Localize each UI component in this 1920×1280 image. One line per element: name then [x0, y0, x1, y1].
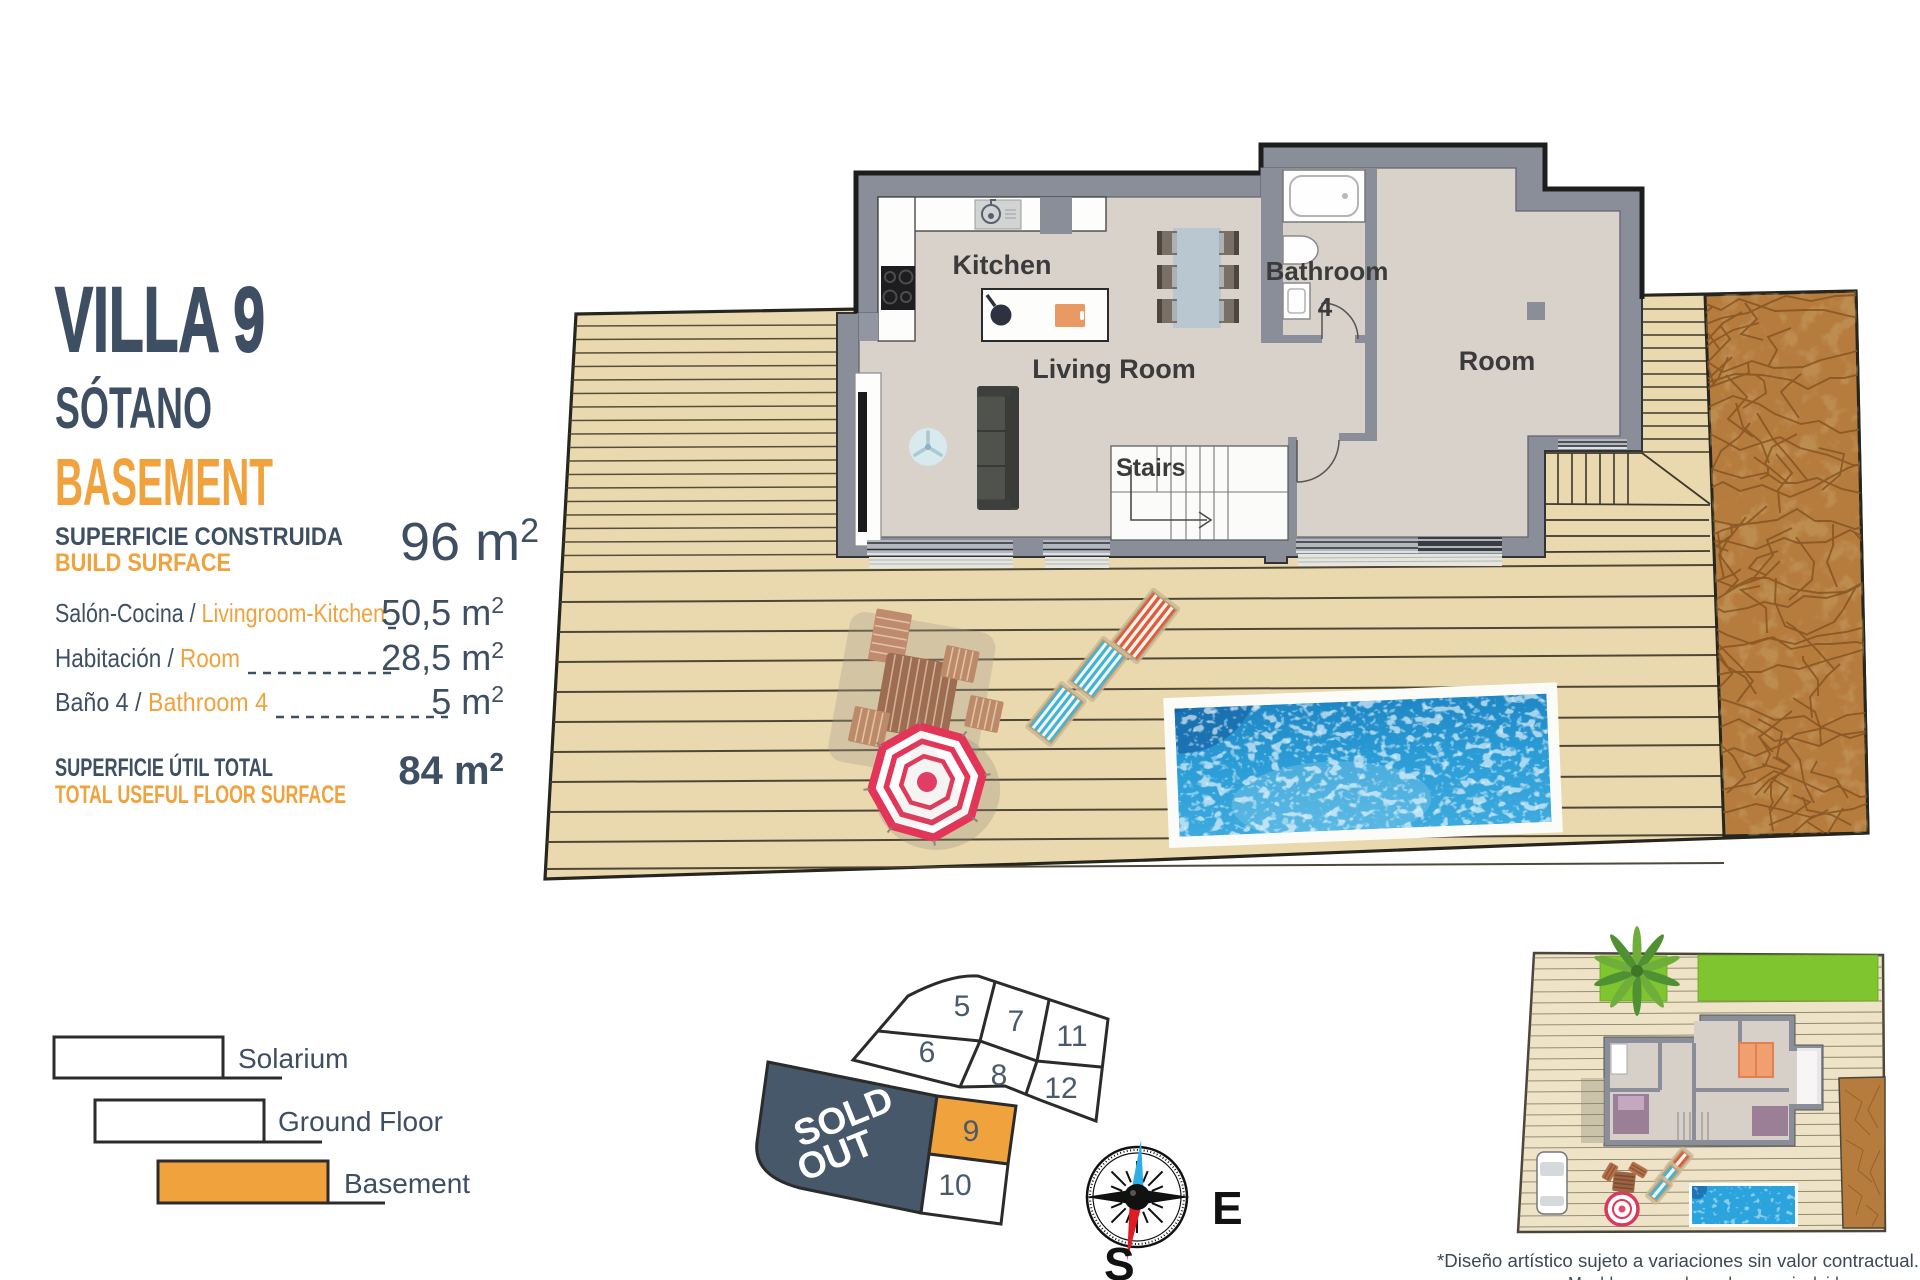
svg-text:Salón-Cocina / Livingroom-Kitc: Salón-Cocina / Livingroom-Kitchen — [55, 598, 385, 628]
svg-text:50,5 m2: 50,5 m2 — [381, 592, 504, 633]
svg-text:8: 8 — [991, 1059, 1008, 1092]
svg-text:BUILD SURFACE: BUILD SURFACE — [55, 549, 231, 577]
svg-text:6: 6 — [919, 1036, 936, 1069]
svg-text:10: 10 — [938, 1169, 971, 1202]
svg-text:Habitación / Room: Habitación / Room — [55, 643, 240, 673]
svg-text:SUPERFICIE ÚTIL TOTAL: SUPERFICIE ÚTIL TOTAL — [55, 752, 273, 782]
svg-text:SÓTANO: SÓTANO — [55, 376, 212, 441]
svg-text:5: 5 — [954, 990, 971, 1023]
svg-text:Basement: Basement — [344, 1168, 470, 1199]
svg-text:*Diseño artístico sujeto a var: *Diseño artístico sujeto a variaciones s… — [1437, 1250, 1919, 1271]
svg-text:9: 9 — [963, 1115, 980, 1148]
svg-text:Stairs: Stairs — [1116, 454, 1185, 482]
svg-text:BASEMENT: BASEMENT — [55, 445, 273, 520]
svg-text:28,5 m2: 28,5 m2 — [381, 637, 504, 678]
svg-text:Room: Room — [1459, 346, 1536, 376]
svg-text:Baño 4 / Bathroom 4: Baño 4 / Bathroom 4 — [55, 687, 268, 717]
svg-text:SUPERFICIE CONSTRUIDA: SUPERFICIE CONSTRUIDA — [55, 523, 343, 551]
svg-text:VILLA 9: VILLA 9 — [55, 269, 265, 371]
svg-text:Living Room: Living Room — [1032, 354, 1196, 384]
svg-text:11: 11 — [1056, 1020, 1087, 1053]
svg-text:84 m2: 84 m2 — [398, 747, 504, 793]
svg-text:Bathroom: Bathroom — [1266, 256, 1389, 286]
svg-text:S: S — [1104, 1238, 1135, 1280]
svg-text:Muebles y paneles solares no i: Muebles y paneles solares no incluidos. — [1568, 1273, 1861, 1280]
svg-text:E: E — [1212, 1182, 1243, 1234]
svg-text:Ground Floor: Ground Floor — [278, 1106, 443, 1137]
svg-text:TOTAL USEFUL FLOOR SURFACE: TOTAL USEFUL FLOOR SURFACE — [55, 781, 346, 809]
svg-text:7: 7 — [1008, 1005, 1025, 1038]
svg-text:96 m2: 96 m2 — [400, 512, 539, 572]
svg-text:Solarium: Solarium — [238, 1043, 348, 1074]
svg-text:4: 4 — [1318, 292, 1333, 322]
svg-text:Kitchen: Kitchen — [952, 250, 1051, 280]
svg-text:12: 12 — [1044, 1072, 1077, 1105]
